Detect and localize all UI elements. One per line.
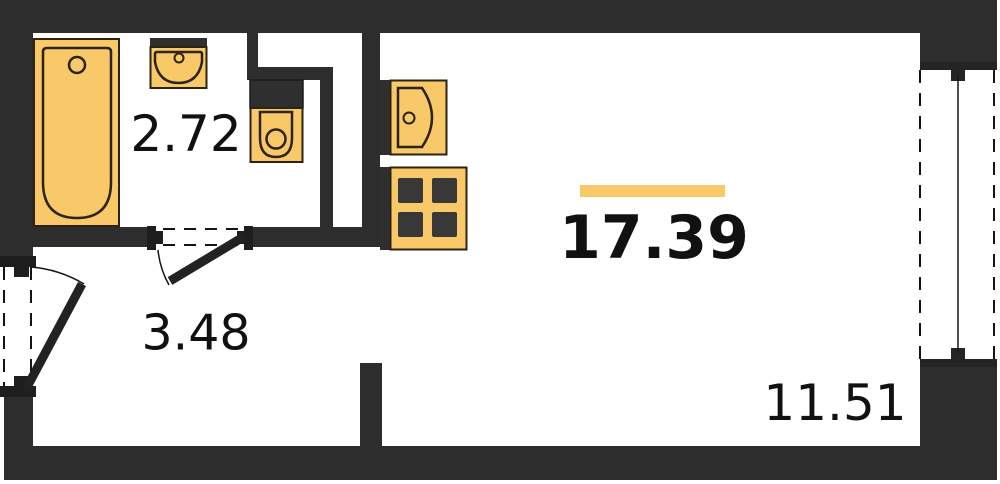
living-room-area-label: 17.39 [559, 208, 749, 268]
entry-door-icon [26, 267, 84, 389]
hallway-area-label: 3.48 [141, 309, 250, 358]
balcony-area-label: 11.51 [763, 378, 906, 428]
living-room-accent-bar [580, 185, 725, 197]
bathroom-area-label: 2.72 [130, 109, 241, 159]
floor-plan: 2.72 3.48 17.39 11.51 [0, 0, 1000, 484]
bathroom-door-icon [158, 236, 245, 285]
toilet-icon [250, 80, 303, 162]
kitchen-sink-icon [380, 80, 447, 155]
bathtub-icon [34, 39, 119, 226]
stove-icon [380, 167, 467, 250]
bathroom-sink-icon [150, 38, 207, 88]
